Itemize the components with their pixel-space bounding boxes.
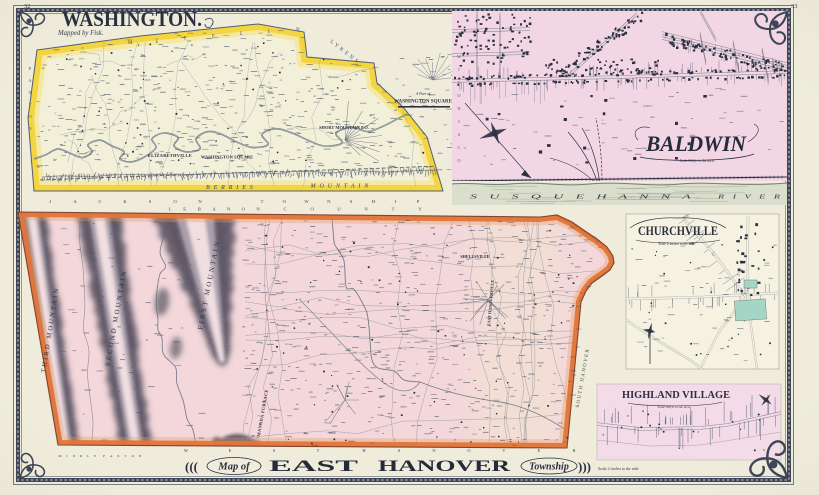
svg-text:E: E bbox=[183, 207, 186, 212]
svg-text:T: T bbox=[261, 199, 264, 204]
svg-text:32: 32 bbox=[24, 3, 31, 10]
svg-text:C: C bbox=[98, 199, 101, 204]
svg-text:Map of: Map of bbox=[217, 462, 251, 473]
svg-text:))): ))) bbox=[578, 459, 591, 474]
svg-text:ELIZABETHVILLE: ELIZABETHVILLE bbox=[148, 153, 192, 158]
svg-text:T: T bbox=[392, 207, 395, 212]
svg-text:S: S bbox=[350, 199, 353, 204]
svg-text:C: C bbox=[283, 207, 286, 212]
svg-text:M: M bbox=[58, 454, 61, 458]
svg-text:O: O bbox=[457, 158, 460, 163]
svg-text:J: J bbox=[49, 199, 51, 204]
svg-text:Scale 2 inches to the mile.: Scale 2 inches to the mile. bbox=[658, 242, 696, 246]
svg-text:T: T bbox=[29, 102, 32, 107]
svg-text:N: N bbox=[457, 106, 460, 111]
svg-text:33: 33 bbox=[791, 3, 798, 10]
svg-text:C: C bbox=[458, 145, 461, 150]
svg-text:S: S bbox=[149, 199, 152, 204]
svg-text:L: L bbox=[169, 207, 172, 212]
svg-text:M: M bbox=[128, 41, 133, 46]
svg-text:B E R R I E S: B E R R I E S bbox=[206, 185, 254, 191]
svg-text:P: P bbox=[417, 199, 420, 204]
svg-text:Township: Township bbox=[529, 462, 569, 473]
svg-text:Mapped by Fisk.: Mapped by Fisk. bbox=[57, 30, 104, 37]
svg-text:E: E bbox=[538, 448, 541, 453]
svg-text:HIGHLAND VILLAGE: HIGHLAND VILLAGE bbox=[622, 389, 730, 401]
svg-text:F: F bbox=[184, 37, 187, 42]
svg-text:M O U N T A I N: M O U N T A I N bbox=[310, 184, 370, 190]
svg-text:SHELLSVILLE: SHELLSVILLE bbox=[460, 254, 490, 259]
svg-text:E: E bbox=[94, 454, 96, 458]
svg-text:EAST: EAST bbox=[269, 458, 359, 475]
svg-text:Scale 300 ft. to the inch.: Scale 300 ft. to the inch. bbox=[658, 405, 691, 409]
svg-text:CHURCHVILLE: CHURCHVILLE bbox=[638, 224, 718, 238]
svg-text:L: L bbox=[87, 454, 89, 458]
svg-text:W: W bbox=[457, 54, 461, 59]
svg-text:WASHINGTON.: WASHINGTON. bbox=[62, 7, 202, 31]
svg-text:F: F bbox=[212, 34, 215, 39]
svg-text:BALDWIN: BALDWIN bbox=[645, 131, 747, 156]
svg-text:S U S Q U E H A N N A: S U S Q U E H A N N A bbox=[470, 194, 695, 201]
svg-text:Scale 300 ft. to the inch.: Scale 300 ft. to the inch. bbox=[680, 159, 715, 163]
svg-text:WASHINGTON SQUARE: WASHINGTON SQUARE bbox=[201, 155, 253, 160]
svg-text:Scale 2 inches to the mile: Scale 2 inches to the mile bbox=[598, 466, 639, 471]
svg-text:O: O bbox=[467, 448, 470, 453]
svg-text:(((: ((( bbox=[185, 459, 198, 474]
svg-text:W: W bbox=[304, 199, 309, 204]
svg-text:R I V E R: R I V E R bbox=[716, 194, 783, 201]
svg-text:P: P bbox=[103, 454, 105, 458]
svg-text:O: O bbox=[457, 93, 460, 98]
svg-text:L: L bbox=[240, 32, 243, 37]
svg-text:E: E bbox=[229, 448, 232, 453]
svg-text:SHORT MOUNTAIN P.O.: SHORT MOUNTAIN P.O. bbox=[319, 125, 369, 130]
svg-text:B: B bbox=[198, 207, 201, 212]
svg-text:N: N bbox=[296, 28, 300, 33]
svg-text:T: T bbox=[317, 448, 320, 453]
svg-text:C: C bbox=[458, 80, 461, 85]
svg-text:HANOVER: HANOVER bbox=[378, 458, 511, 475]
svg-text:WASHINGTON SQUARE: WASHINGTON SQUARE bbox=[394, 100, 452, 105]
svg-text:A Part of: A Part of bbox=[415, 91, 431, 96]
svg-text:R: R bbox=[573, 448, 576, 453]
